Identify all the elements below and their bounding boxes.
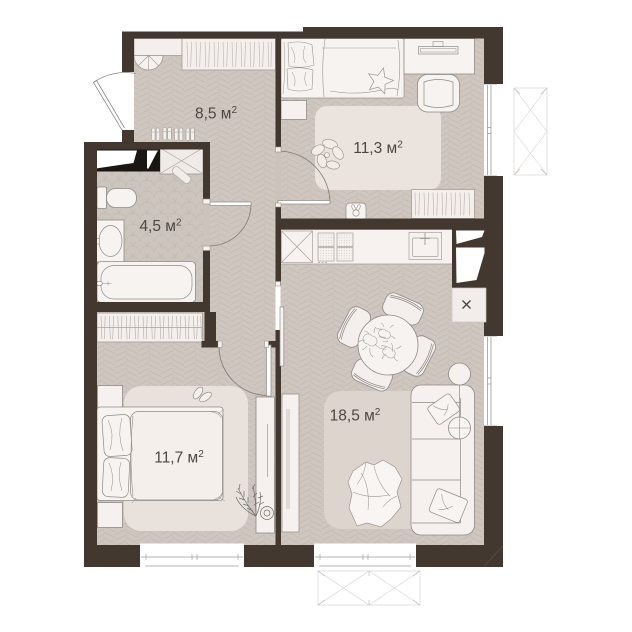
svg-text:11,3 м2: 11,3 м2 [353, 140, 403, 158]
svg-text:4,5 м2: 4,5 м2 [139, 218, 182, 236]
svg-text:11,7 м2: 11,7 м2 [154, 449, 204, 467]
svg-text:8,5 м2: 8,5 м2 [195, 105, 238, 123]
svg-text:18,5 м2: 18,5 м2 [330, 407, 381, 425]
